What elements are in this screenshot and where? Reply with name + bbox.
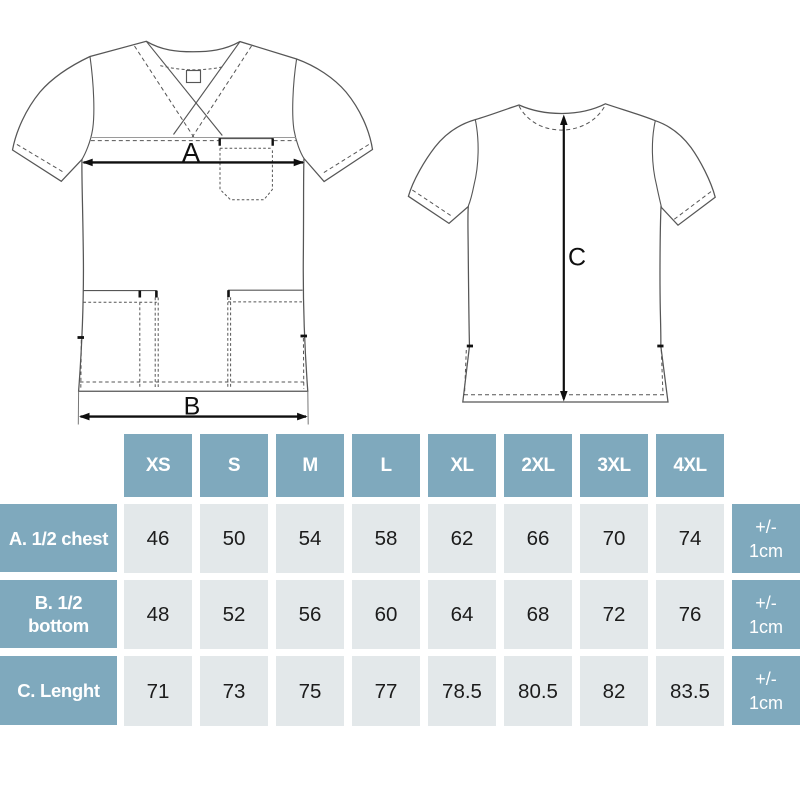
svg-text:C: C xyxy=(568,244,586,272)
svg-text:A: A xyxy=(182,138,200,168)
svg-text:B: B xyxy=(184,393,201,421)
